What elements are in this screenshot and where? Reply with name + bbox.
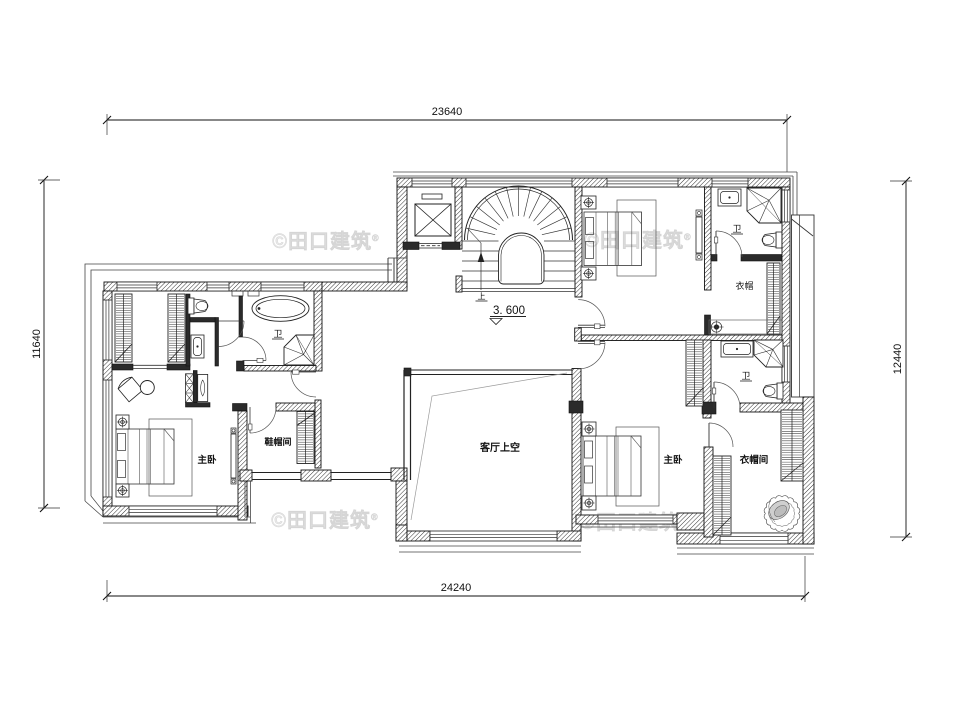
svg-text:卫: 卫 [273, 329, 282, 339]
svg-text:主卧: 主卧 [197, 454, 217, 466]
svg-text:©田口建筑®: ©田口建筑® [584, 228, 691, 252]
svg-text:客厅上空: 客厅上空 [479, 441, 520, 454]
svg-text:卫: 卫 [732, 224, 741, 234]
svg-text:24240: 24240 [441, 582, 472, 594]
svg-text:12440: 12440 [892, 344, 904, 375]
svg-text:©田口建筑®: ©田口建筑® [272, 229, 379, 253]
svg-text:23640: 23640 [432, 106, 463, 118]
svg-text:11640: 11640 [31, 329, 43, 359]
svg-text:衣帽: 衣帽 [735, 280, 753, 291]
svg-text:3. 600: 3. 600 [493, 305, 525, 317]
svg-text:衣帽间: 衣帽间 [740, 454, 769, 466]
svg-text:©田口建筑®: ©田口建筑® [271, 508, 378, 532]
svg-text:鞋帽间: 鞋帽间 [264, 436, 291, 447]
svg-text:上: 上 [478, 292, 486, 301]
svg-text:主卧: 主卧 [663, 454, 683, 466]
svg-text:卫: 卫 [741, 371, 750, 381]
